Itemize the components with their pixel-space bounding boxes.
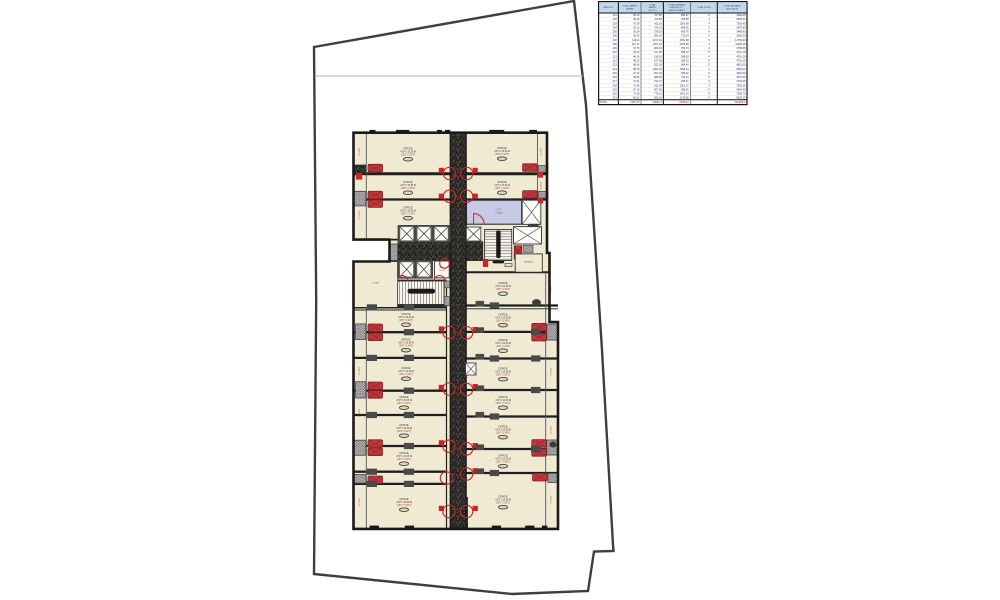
svg-text:(15'0" X 34'0"): (15'0" X 34'0") — [397, 459, 412, 461]
svg-text:OFFICE: OFFICE — [401, 367, 410, 370]
svg-text:413.88: 413.88 — [654, 18, 662, 21]
svg-text:4.57 X 10.36 M: 4.57 X 10.36 M — [495, 286, 511, 288]
svg-text:218: 218 — [613, 84, 618, 87]
svg-text:4.57 X 10.36 M: 4.57 X 10.36 M — [398, 317, 414, 319]
svg-text:202: 202 — [613, 18, 618, 21]
svg-text:208: 208 — [613, 43, 618, 46]
svg-text:4.57 X 10.36 M: 4.57 X 10.36 M — [495, 459, 511, 461]
svg-text:4'0" WIDE: 4'0" WIDE — [551, 425, 553, 434]
svg-text:507.52: 507.52 — [654, 88, 662, 91]
svg-text:751.73: 751.73 — [681, 47, 689, 50]
svg-text:(15'0" X 34'0"): (15'0" X 34'0") — [496, 289, 511, 291]
svg-text:(15'0" X 34'0"): (15'0" X 34'0") — [496, 433, 511, 435]
svg-text:23253.0: 23253.0 — [679, 100, 689, 104]
svg-text:215: 215 — [613, 72, 618, 75]
svg-text:47.12: 47.12 — [633, 72, 640, 75]
svg-text:4.57 X 10.36 M: 4.57 X 10.36 M — [400, 211, 416, 213]
svg-text:11759.90: 11759.90 — [735, 39, 746, 42]
svg-text:4'0" WIDE: 4'0" WIDE — [551, 367, 553, 376]
svg-text:112.17: 112.17 — [632, 43, 640, 46]
svg-text:(15'0" X 34'0"): (15'0" X 34'0") — [397, 403, 412, 405]
svg-text:518.18: 518.18 — [654, 55, 662, 58]
svg-text:1278.65: 1278.65 — [680, 97, 690, 100]
svg-text:EXBC/SQ. FT.: EXBC/SQ. FT. — [670, 7, 683, 9]
svg-text:517.96: 517.96 — [654, 51, 662, 54]
svg-text:3758.65: 3758.65 — [736, 47, 746, 50]
svg-text:(15'0" X 34'0"): (15'0" X 34'0") — [496, 403, 511, 405]
svg-text:958.23: 958.23 — [681, 60, 689, 63]
svg-text:4.57 X 10.36 M: 4.57 X 10.36 M — [396, 400, 412, 402]
svg-text:OFFICE: OFFICE — [498, 367, 507, 370]
svg-text:9832.20: 9832.20 — [736, 68, 746, 71]
svg-text:378.25: 378.25 — [654, 31, 662, 34]
svg-text:CARPET: CARPET — [648, 6, 657, 9]
svg-text:4740.35: 4740.35 — [736, 80, 746, 83]
svg-text:OFFICE: OFFICE — [399, 396, 408, 399]
svg-text:(15'0" X 34'0"): (15'0" X 34'0") — [496, 462, 511, 464]
svg-text:4691.60: 4691.60 — [736, 72, 746, 75]
svg-text:4.57 X 10.36 M: 4.57 X 10.36 M — [396, 502, 412, 504]
svg-text:4'0" WIDE: 4'0" WIDE — [359, 408, 361, 417]
svg-text:48.43: 48.43 — [633, 64, 640, 67]
svg-text:(RERA): (RERA) — [626, 7, 633, 10]
svg-text:7505.35: 7505.35 — [736, 84, 746, 87]
svg-text:517.96: 517.96 — [654, 60, 662, 63]
svg-text:11168.45: 11168.45 — [735, 43, 746, 46]
svg-text:714.10: 714.10 — [681, 76, 689, 79]
svg-text:4822.00: 4822.00 — [736, 64, 746, 67]
svg-text:1966.44: 1966.44 — [680, 68, 690, 71]
svg-text:LOBBY: LOBBY — [495, 213, 503, 215]
svg-text:OFFICE: OFFICE — [403, 206, 412, 209]
svg-text:1441.34: 1441.34 — [680, 93, 690, 96]
svg-text:4'0" WIDE: 4'0" WIDE — [359, 366, 361, 375]
svg-text:12569.1: 12569.1 — [652, 100, 662, 104]
svg-text:212: 212 — [613, 60, 618, 63]
svg-text:220: 220 — [613, 93, 618, 96]
svg-text:4.57 X 10.36 M: 4.57 X 10.36 M — [495, 400, 511, 402]
svg-text:7503.40: 7503.40 — [736, 22, 746, 25]
svg-text:LIFT: LIFT — [497, 210, 502, 212]
svg-text:48.14: 48.14 — [633, 55, 640, 58]
svg-text:698.97: 698.97 — [681, 14, 689, 17]
svg-text:392.02: 392.02 — [654, 35, 662, 38]
svg-text:206: 206 — [613, 35, 618, 38]
svg-text:221: 221 — [613, 97, 618, 100]
svg-text:48.12: 48.12 — [633, 60, 640, 63]
svg-text:4.57 X 10.36 M: 4.57 X 10.36 M — [495, 430, 511, 432]
svg-text:3494.85: 3494.85 — [736, 14, 746, 17]
svg-text:406.34: 406.34 — [654, 47, 662, 50]
svg-text:4'0" WIDE: 4'0" WIDE — [359, 147, 361, 156]
svg-text:(15'0" X 34'0"): (15'0" X 34'0") — [397, 505, 412, 507]
svg-text:TOTAL SALEABLE: TOTAL SALEABLE — [724, 5, 742, 8]
svg-text:OFFICE: OFFICE — [498, 339, 507, 342]
svg-text:811.18: 811.18 — [654, 22, 662, 25]
svg-text:(15'0" X 34'0"): (15'0" X 34'0") — [401, 214, 416, 216]
svg-text:216: 216 — [613, 76, 618, 79]
svg-text:4.57 X 10.36 M: 4.57 X 10.36 M — [396, 456, 412, 458]
svg-text:35.14: 35.14 — [633, 31, 640, 34]
svg-text:938.91: 938.91 — [681, 88, 689, 91]
svg-text:ROOM: ROOM — [439, 270, 445, 272]
svg-text:(SQ. FT.): (SQ. FT.) — [648, 10, 656, 12]
svg-text:OFFICE: OFFICE — [403, 147, 412, 150]
svg-text:(15'0" X 34'0"): (15'0" X 34'0") — [401, 188, 416, 190]
svg-text:691.16: 691.16 — [654, 97, 662, 100]
svg-text:4.57 X 10.36 M: 4.57 X 10.36 M — [495, 318, 511, 320]
svg-text:3497.80: 3497.80 — [736, 26, 746, 29]
svg-text:3570.50: 3570.50 — [736, 76, 746, 79]
svg-text:35.10: 35.10 — [633, 14, 640, 17]
svg-text:38.45: 38.45 — [633, 18, 640, 21]
svg-text:4'0" WIDE: 4'0" WIDE — [359, 210, 361, 219]
svg-text:512.47: 512.47 — [654, 80, 662, 83]
svg-text:116265.2: 116265.2 — [735, 100, 746, 104]
svg-text:219: 219 — [613, 88, 618, 91]
svg-text:2233.69: 2233.69 — [680, 43, 690, 46]
svg-text:204: 204 — [613, 26, 618, 29]
svg-text:201: 201 — [613, 14, 618, 17]
svg-text:386.00: 386.00 — [654, 76, 662, 79]
svg-text:699.76: 699.76 — [681, 31, 689, 34]
svg-text:OFFICE: OFFICE — [497, 147, 506, 150]
svg-text:TOTAL: TOTAL — [599, 101, 607, 104]
svg-text:213: 213 — [613, 64, 618, 67]
svg-text:TOTAL FLOOR: TOTAL FLOOR — [697, 6, 711, 9]
svg-text:OFFICE: OFFICE — [498, 454, 507, 457]
svg-text:72.38: 72.38 — [633, 93, 640, 96]
svg-text:203: 203 — [613, 22, 618, 25]
svg-text:(15'0" X 34'0"): (15'0" X 34'0") — [496, 375, 511, 377]
svg-text:4.57 X 10.36 M: 4.57 X 10.36 M — [495, 343, 511, 345]
svg-text:211: 211 — [613, 55, 618, 58]
svg-text:TOTAL SALEABLE: TOTAL SALEABLE — [668, 3, 686, 6]
svg-text:4'0" WIDE: 4'0" WIDE — [541, 181, 543, 190]
svg-text:47.61: 47.61 — [633, 80, 640, 83]
svg-text:948.07: 948.07 — [681, 80, 689, 83]
svg-text:811.39: 811.39 — [654, 84, 662, 87]
svg-text:1062.94: 1062.94 — [653, 68, 663, 71]
svg-text:(APPROX RATIO): (APPROX RATIO) — [669, 9, 686, 12]
svg-text:4694.55: 4694.55 — [736, 88, 746, 91]
svg-text:(15'0" X 34'0"): (15'0" X 34'0") — [397, 431, 412, 433]
svg-text:1271.34: 1271.34 — [653, 39, 663, 42]
svg-text:210: 210 — [613, 51, 618, 54]
svg-text:521.30: 521.30 — [654, 64, 662, 67]
svg-text:OFFICE: OFFICE — [498, 425, 507, 428]
svg-text:507.20: 507.20 — [654, 72, 662, 75]
svg-text:OFFICE: OFFICE — [497, 181, 506, 184]
svg-text:4.57 X 10.36 M: 4.57 X 10.36 M — [494, 185, 510, 187]
svg-text:TOTAL CARPET: TOTAL CARPET — [622, 5, 638, 8]
svg-text:35.13: 35.13 — [633, 26, 640, 29]
svg-text:3626.20: 3626.20 — [736, 35, 746, 38]
svg-text:7206.70: 7206.70 — [736, 93, 746, 96]
svg-text:1167.75: 1167.75 — [630, 100, 640, 104]
svg-text:217: 217 — [613, 80, 618, 83]
svg-text:(15'0" X 34'0"): (15'0" X 34'0") — [495, 154, 510, 156]
svg-text:75.38: 75.38 — [633, 84, 640, 87]
svg-text:OFFICE: OFFICE — [399, 498, 408, 501]
svg-text:3498.80: 3498.80 — [736, 31, 746, 34]
svg-text:35.86: 35.86 — [633, 76, 640, 79]
svg-text:(15'0" X 34'0"): (15'0" X 34'0") — [495, 188, 510, 190]
svg-text:4791.15: 4791.15 — [736, 51, 746, 54]
svg-text:OFFICE: OFFICE — [401, 338, 410, 341]
svg-text:765.68: 765.68 — [681, 18, 689, 21]
svg-text:PASSAGE: PASSAGE — [524, 261, 534, 264]
svg-text:4.57 X 10.36 M: 4.57 X 10.36 M — [400, 185, 416, 187]
svg-text:OFFICE: OFFICE — [401, 313, 410, 316]
svg-text:207: 207 — [613, 39, 618, 42]
svg-text:6393.25: 6393.25 — [736, 97, 746, 100]
svg-text:958.63: 958.63 — [681, 55, 689, 58]
svg-text:4.57 X 10.36 M: 4.57 X 10.36 M — [398, 343, 414, 345]
svg-text:378.14: 378.14 — [654, 26, 662, 29]
svg-text:OFFICE: OFFICE — [498, 495, 507, 498]
svg-text:4.57 X 10.36 M: 4.57 X 10.36 M — [495, 500, 511, 502]
svg-text:(15'0" X 34'0"): (15'0" X 34'0") — [399, 346, 414, 348]
svg-text:4.57 X 10.36 M: 4.57 X 10.36 M — [396, 428, 412, 430]
svg-text:1207.40: 1207.40 — [653, 43, 663, 46]
svg-text:(SPG. MTLS): (SPG. MTLS) — [726, 8, 738, 10]
svg-text:(15'0" X 34'0"): (15'0" X 34'0") — [399, 320, 414, 322]
svg-text:OFFICE: OFFICE — [498, 396, 507, 399]
svg-text:214: 214 — [613, 68, 618, 71]
svg-text:OFFICE: OFFICE — [403, 181, 412, 184]
svg-text:4.57 X 10.36 M: 4.57 X 10.36 M — [400, 152, 416, 154]
svg-text:(15'0" X 34'0"): (15'0" X 34'0") — [496, 503, 511, 505]
svg-text:OFFICE: OFFICE — [399, 452, 408, 455]
svg-text:APMT NO.: APMT NO. — [604, 6, 614, 9]
svg-text:TOTAL: TOTAL — [649, 3, 656, 6]
svg-text:(15'0" X 34'0"): (15'0" X 34'0") — [399, 374, 414, 376]
svg-text:OFFICE: OFFICE — [498, 282, 507, 285]
svg-text:47.15: 47.15 — [633, 88, 640, 91]
svg-text:779.10: 779.10 — [654, 93, 662, 96]
svg-text:4'0" WIDE: 4'0" WIDE — [551, 495, 553, 504]
svg-text:205: 205 — [613, 31, 618, 34]
svg-text:4.57 X 10.36 M: 4.57 X 10.36 M — [495, 372, 511, 374]
svg-text:4.57 X 10.36 M: 4.57 X 10.36 M — [398, 371, 414, 373]
svg-text:938.32: 938.32 — [681, 72, 689, 75]
svg-text:4793.15: 4793.15 — [736, 55, 746, 58]
svg-text:48.12: 48.12 — [633, 51, 640, 54]
svg-text:(15'0" X 34'0"): (15'0" X 34'0") — [496, 321, 511, 323]
svg-text:964.40: 964.40 — [681, 64, 689, 67]
svg-text:LOBBY: LOBBY — [372, 283, 380, 285]
svg-text:OFFICE: OFFICE — [498, 313, 507, 316]
svg-text:2351.98: 2351.98 — [680, 39, 690, 42]
svg-text:98.75: 98.75 — [633, 68, 640, 71]
svg-text:1501.07: 1501.07 — [680, 84, 690, 87]
svg-text:209: 209 — [613, 47, 618, 50]
svg-text:3828.40: 3828.40 — [736, 18, 746, 21]
svg-text:699.56: 699.56 — [681, 26, 689, 29]
svg-text:(15'0" X 34'0"): (15'0" X 34'0") — [401, 155, 416, 157]
svg-text:4.57 X 10.36 M: 4.57 X 10.36 M — [494, 151, 510, 153]
svg-text:377.82: 377.82 — [654, 14, 662, 17]
svg-text:725.24: 725.24 — [681, 35, 689, 38]
svg-text:(15'0" X 34'0"): (15'0" X 34'0") — [496, 346, 511, 348]
svg-text:4'0" WIDE: 4'0" WIDE — [541, 147, 543, 156]
svg-text:75.36: 75.36 — [633, 22, 640, 25]
svg-text:37.75: 37.75 — [633, 47, 640, 50]
svg-text:4'0" WIDE: 4'0" WIDE — [359, 497, 361, 506]
svg-text:958.23: 958.23 — [681, 51, 689, 54]
svg-text:36.42: 36.42 — [633, 35, 640, 38]
svg-text:1500.68: 1500.68 — [680, 22, 690, 25]
svg-text:64.21: 64.21 — [633, 97, 640, 100]
svg-text:118.11: 118.11 — [632, 39, 640, 42]
svg-text:OFFICE: OFFICE — [399, 424, 408, 427]
svg-text:4791.15: 4791.15 — [736, 60, 746, 63]
